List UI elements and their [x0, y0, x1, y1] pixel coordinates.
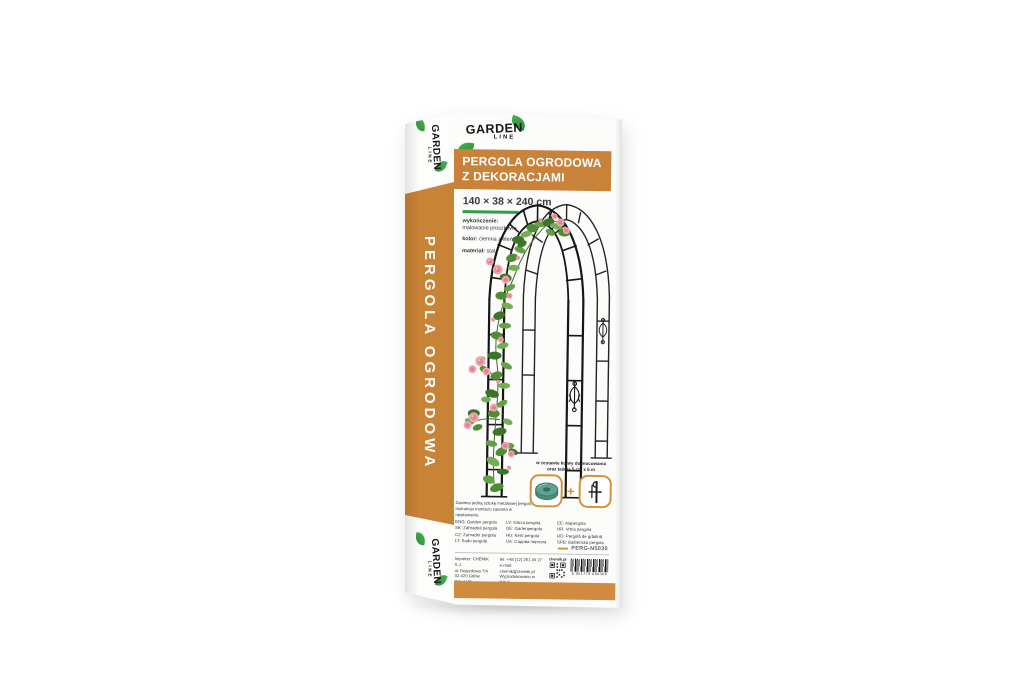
garden-line-logo: GARDEN LINE [465, 121, 529, 152]
ground-anchor-icon [583, 478, 607, 504]
brand-name: GARDEN [429, 124, 443, 176]
leaf-icon [414, 532, 425, 545]
product-title-line2: Z DEKORACJAMI [462, 169, 611, 186]
side-vertical-title: PERGOLA OGRODOWA [421, 236, 438, 470]
spec-color: kolor: ciemna zieleń [462, 236, 522, 243]
garden-line-logo: GARDEN LINE [418, 538, 442, 589]
spec-list: wykończenie: malowanie proszkowe kolor: … [462, 218, 523, 260]
plus-sign: + [567, 484, 575, 499]
tape-roll-icon [532, 479, 560, 503]
bottom-orange-strip [447, 581, 615, 600]
box-front-face: GARDEN LINE PERGOLA OGRODOWA Z DEKORACJA… [454, 111, 622, 608]
spec-finish: wykończenie: malowanie proszkowe [462, 218, 522, 232]
product-title-band: PERGOLA OGRODOWA Z DEKORACJAMI [453, 149, 612, 191]
brand-name: GARDEN [466, 120, 530, 136]
garden-line-logo: GARDEN LINE [418, 124, 442, 175]
front-logo: GARDEN LINE [465, 121, 529, 152]
footer-divider [455, 552, 609, 555]
code-dash [558, 547, 568, 549]
leaf-icon [414, 118, 425, 131]
barcode-number: 5 901779 050306 [570, 572, 610, 577]
translations-col1: ENG: Garden pergola SK: Záhradná pergola… [455, 519, 502, 545]
translations-grid: ENG: Garden pergola SK: Záhradná pergola… [455, 519, 611, 546]
contents-note-line2: Instrukcja montażu zawarta w opakowaniu. [455, 506, 533, 519]
tape-icon-box [530, 474, 563, 507]
translations-col2: LV: Dārza pergola DE: Gartenpergola HU: … [506, 520, 553, 546]
barcode-icon [571, 559, 609, 573]
contents-note: Zawiera jedną sztukę metalowej pergoli. … [455, 500, 533, 519]
product-code: PERG-N5030 [571, 546, 608, 553]
product-photo-stage: GARDEN LINE PERGOLA OGRODOWA GARDEN LINE [0, 0, 1024, 683]
qr-code-icon [549, 562, 565, 578]
box-side-panel: GARDEN LINE PERGOLA OGRODOWA GARDEN LINE [405, 112, 454, 606]
spec-material: materiał: stal [462, 248, 522, 255]
product-code-row: PERG-N5030 [558, 545, 608, 552]
side-orange-band: PERGOLA OGRODOWA [405, 182, 454, 525]
translations-col3: EE: Aiapergola HR: Vrtna pergola RO: Per… [557, 520, 611, 546]
anchor-icon-box [578, 475, 611, 508]
included-accessories-inset: w zestawie kotwy do mocowania oraz taśma… [528, 460, 613, 508]
brand-name: GARDEN [429, 538, 443, 590]
product-box: GARDEN LINE PERGOLA OGRODOWA GARDEN LINE [405, 111, 622, 608]
